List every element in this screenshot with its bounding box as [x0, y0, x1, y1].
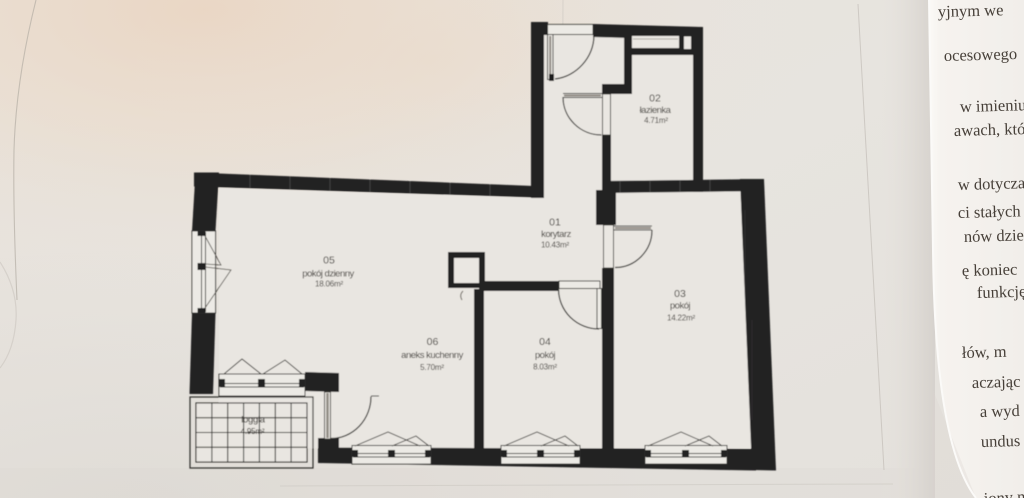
svg-text:4.71m²: 4.71m²	[644, 116, 668, 125]
svg-text:01: 01	[549, 217, 561, 229]
svg-text:a wyd: a wyd	[980, 401, 1021, 421]
svg-text:funkcję: funkcję	[977, 282, 1024, 302]
svg-text:5.70m²: 5.70m²	[420, 363, 444, 372]
svg-text:18.06m²: 18.06m²	[315, 280, 343, 289]
svg-text:aneks kuchenny: aneks kuchenny	[401, 350, 463, 361]
svg-text:02: 02	[649, 93, 661, 105]
svg-text:undus: undus	[981, 431, 1021, 451]
svg-text:awach, któ: awach, któ	[954, 119, 1024, 140]
svg-text:8.03m²: 8.03m²	[533, 363, 557, 372]
svg-text:korytarz: korytarz	[541, 229, 572, 240]
svg-text:jony n: jony n	[982, 487, 1024, 498]
svg-text:loggia: loggia	[241, 415, 266, 426]
svg-text:pokój: pokój	[670, 301, 691, 312]
svg-text:ę koniec: ę koniec	[962, 260, 1018, 280]
svg-text:yjnym we: yjnym we	[938, 0, 1004, 21]
svg-text:w imieniu: w imieniu	[960, 95, 1024, 116]
svg-text:05: 05	[323, 255, 335, 267]
svg-text:aczając: aczając	[972, 372, 1021, 392]
svg-text:łazienka: łazienka	[640, 105, 672, 116]
svg-text:pokój dzienny: pokój dzienny	[302, 269, 354, 280]
svg-text:10.43m²: 10.43m²	[541, 241, 569, 250]
svg-text:14.22m²: 14.22m²	[667, 314, 695, 323]
svg-text:03: 03	[674, 288, 686, 300]
svg-text:pokój: pokój	[535, 350, 556, 361]
svg-text:ci stałych: ci stałych	[958, 201, 1022, 222]
svg-text:w dotycza: w dotycza	[958, 173, 1024, 194]
svg-text:łów, m: łów, m	[962, 342, 1007, 362]
svg-text:ocesowego: ocesowego	[944, 44, 1018, 65]
svg-text:04: 04	[539, 336, 551, 348]
svg-text:4.95m²: 4.95m²	[241, 427, 265, 436]
svg-text:06: 06	[427, 336, 439, 348]
svg-text:nów dzie: nów dzie	[964, 225, 1024, 246]
